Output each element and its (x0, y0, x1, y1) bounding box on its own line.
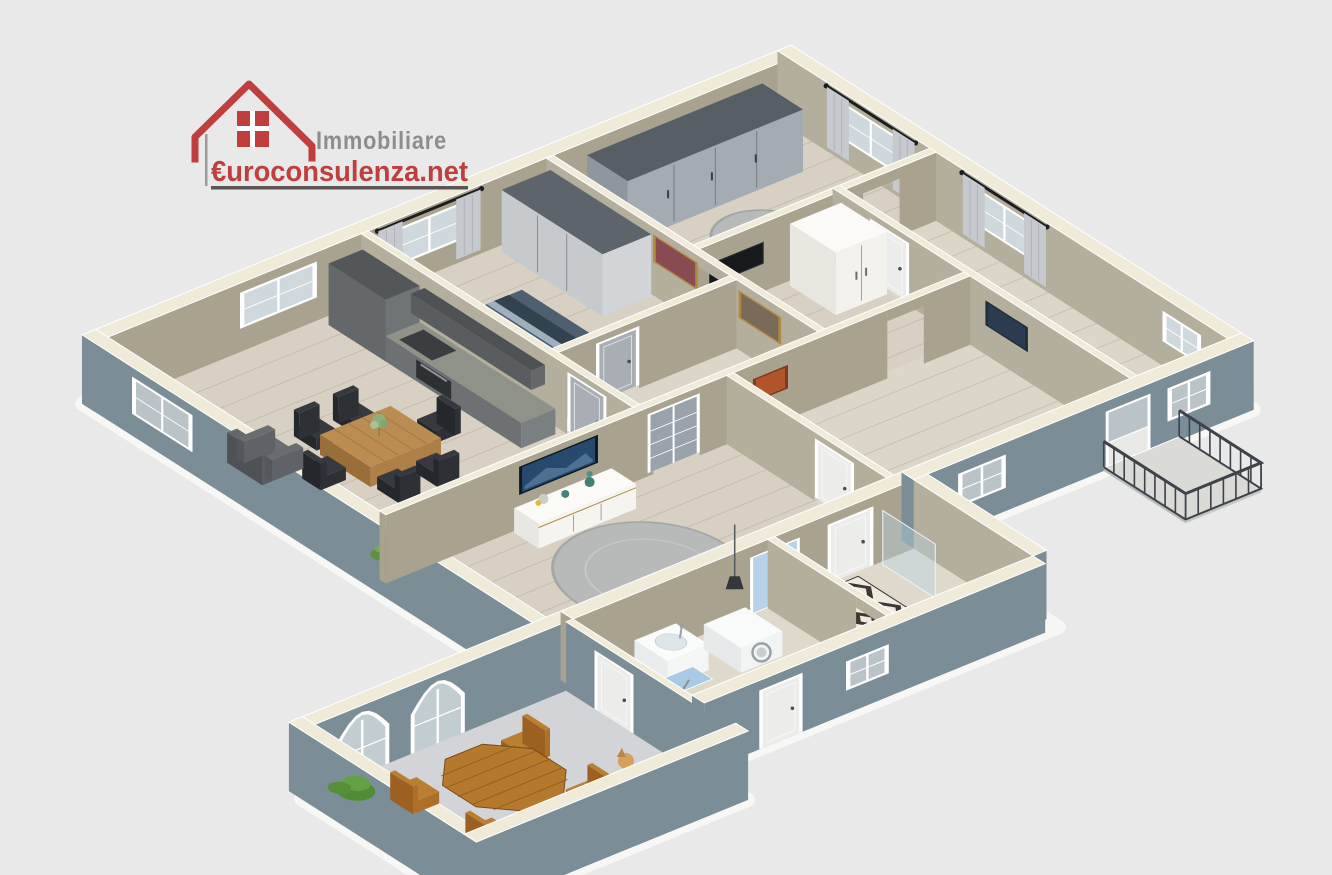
logo-immobiliare-text: Immobiliare (316, 127, 447, 155)
logo-divider-line (205, 134, 208, 186)
house-window-mullion (237, 126, 269, 131)
floorplan-svg: Immobiliare €uroconsulenza.net (0, 0, 1332, 875)
floor-plan-render: Immobiliare €uroconsulenza.net (0, 0, 1332, 875)
logo-underline (211, 186, 468, 190)
logo-domain-text: €uroconsulenza.net (211, 156, 468, 188)
